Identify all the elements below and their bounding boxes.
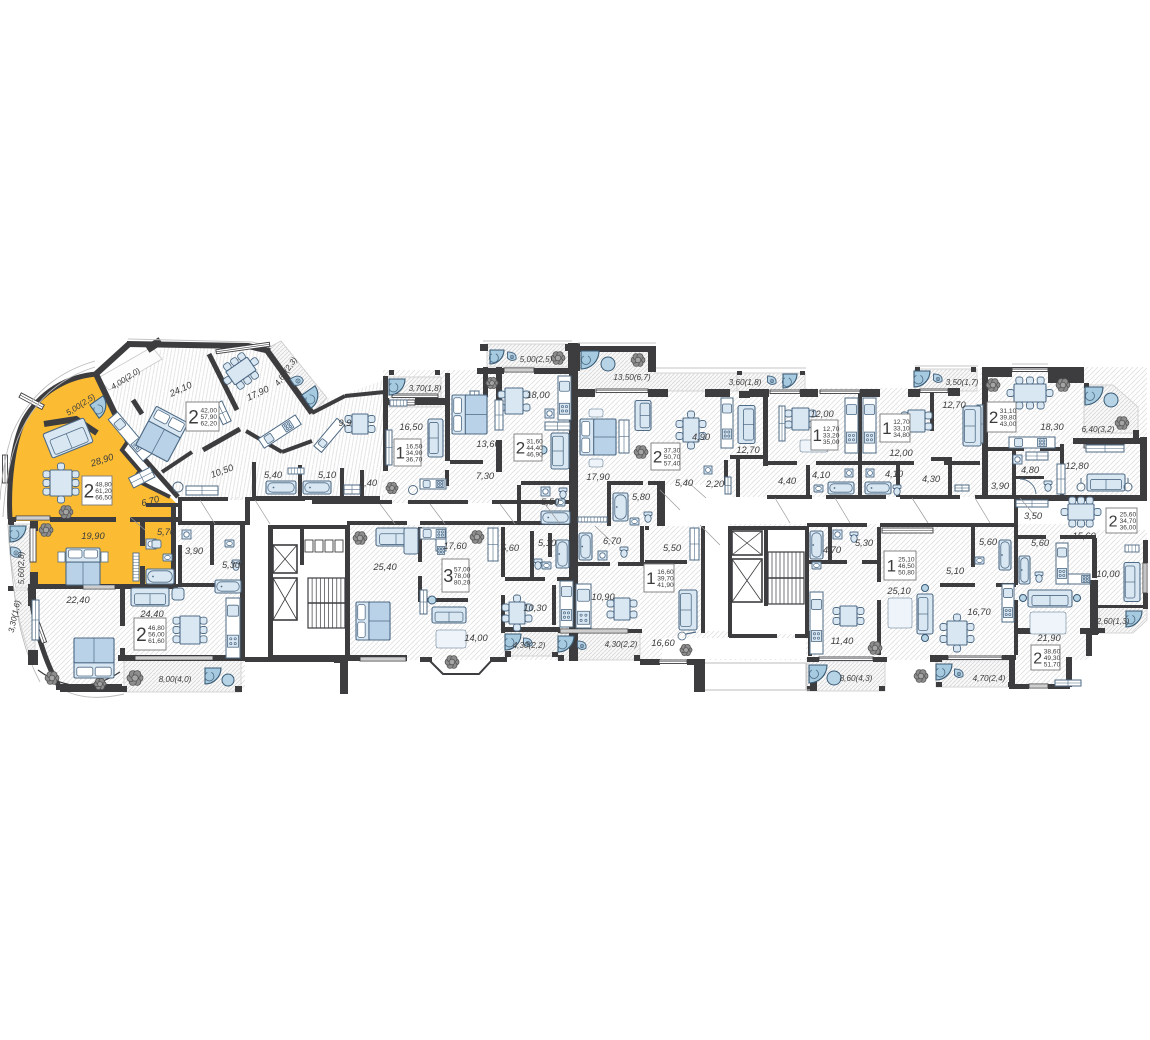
svg-text:3,50(1,7): 3,50(1,7) bbox=[946, 378, 979, 387]
svg-text:4,80: 4,80 bbox=[1021, 465, 1040, 475]
svg-text:19,90: 19,90 bbox=[81, 531, 105, 541]
svg-text:16,70: 16,70 bbox=[967, 607, 991, 617]
svg-text:14,00: 14,00 bbox=[464, 633, 488, 643]
svg-text:51,70: 51,70 bbox=[1044, 662, 1061, 669]
svg-text:2,20: 2,20 bbox=[705, 479, 725, 489]
svg-text:17,60: 17,60 bbox=[443, 541, 467, 551]
svg-text:50,80: 50,80 bbox=[898, 570, 915, 577]
svg-text:1: 1 bbox=[812, 426, 821, 445]
svg-text:16,50: 16,50 bbox=[399, 422, 423, 432]
svg-text:11,40: 11,40 bbox=[831, 636, 854, 646]
svg-text:22,40: 22,40 bbox=[65, 595, 90, 605]
svg-text:61,60: 61,60 bbox=[148, 638, 165, 645]
svg-text:62,20: 62,20 bbox=[201, 421, 218, 428]
svg-text:2: 2 bbox=[989, 408, 998, 427]
svg-text:25,10: 25,10 bbox=[886, 586, 911, 596]
svg-text:2: 2 bbox=[84, 481, 95, 502]
svg-text:2,60(1,3): 2,60(1,3) bbox=[1096, 617, 1130, 626]
svg-text:5,60: 5,60 bbox=[501, 543, 520, 553]
svg-text:6,70: 6,70 bbox=[603, 536, 622, 546]
svg-text:4,10: 4,10 bbox=[885, 469, 904, 479]
svg-text:4,70: 4,70 bbox=[823, 545, 842, 555]
svg-text:B: B bbox=[511, 355, 514, 360]
svg-text:3,90: 3,90 bbox=[991, 481, 1010, 491]
svg-text:8,60(4,3): 8,60(4,3) bbox=[840, 674, 873, 683]
svg-text:1: 1 bbox=[395, 444, 404, 463]
svg-text:80,20: 80,20 bbox=[454, 580, 471, 587]
svg-text:5,10: 5,10 bbox=[538, 538, 557, 548]
svg-text:4,30(2,2): 4,30(2,2) bbox=[605, 640, 638, 649]
svg-text:4,30(2,2): 4,30(2,2) bbox=[513, 641, 546, 650]
svg-text:5,60: 5,60 bbox=[979, 537, 998, 547]
svg-text:24,40: 24,40 bbox=[139, 609, 164, 619]
svg-text:3,60(1,8): 3,60(1,8) bbox=[729, 378, 762, 387]
svg-text:2: 2 bbox=[188, 407, 199, 428]
svg-text:13,50(6,7): 13,50(6,7) bbox=[613, 373, 651, 382]
svg-text:35,00: 35,00 bbox=[823, 439, 840, 446]
svg-text:1: 1 bbox=[646, 569, 655, 588]
svg-text:25,40: 25,40 bbox=[372, 562, 397, 572]
svg-text:12,70: 12,70 bbox=[942, 400, 966, 410]
svg-text:12,00: 12,00 bbox=[889, 448, 913, 458]
svg-text:41,90: 41,90 bbox=[657, 582, 674, 589]
svg-text:2: 2 bbox=[653, 448, 662, 467]
svg-text:B: B bbox=[937, 377, 940, 382]
svg-text:2: 2 bbox=[516, 439, 525, 458]
svg-text:8,00(4,0): 8,00(4,0) bbox=[159, 675, 192, 684]
svg-text:43,00: 43,00 bbox=[1000, 421, 1017, 428]
svg-text:5,70: 5,70 bbox=[157, 527, 176, 537]
svg-text:10,00: 10,00 bbox=[1096, 569, 1120, 579]
svg-text:18,00: 18,00 bbox=[526, 390, 550, 400]
svg-text:4,70(2,4): 4,70(2,4) bbox=[973, 674, 1006, 683]
svg-text:3,40: 3,40 bbox=[359, 478, 378, 488]
svg-text:15,60: 15,60 bbox=[1072, 531, 1096, 541]
svg-text:B: B bbox=[958, 672, 961, 677]
svg-text:3,70(1,8): 3,70(1,8) bbox=[409, 384, 442, 393]
svg-text:57,40: 57,40 bbox=[664, 461, 681, 468]
svg-text:5,60: 5,60 bbox=[1031, 538, 1050, 548]
svg-text:9,9: 9,9 bbox=[339, 418, 352, 428]
svg-text:7,30: 7,30 bbox=[476, 471, 495, 481]
svg-text:5,30: 5,30 bbox=[855, 538, 874, 548]
svg-text:34,80: 34,80 bbox=[893, 432, 910, 439]
svg-text:2: 2 bbox=[1033, 650, 1042, 667]
svg-text:36,00: 36,00 bbox=[1120, 525, 1137, 532]
svg-text:1: 1 bbox=[882, 419, 891, 438]
svg-text:46,90: 46,90 bbox=[526, 452, 543, 459]
svg-text:36,70: 36,70 bbox=[406, 457, 423, 464]
svg-text:2: 2 bbox=[136, 625, 147, 646]
svg-text:16,60: 16,60 bbox=[651, 638, 675, 648]
svg-text:4,10: 4,10 bbox=[812, 470, 831, 480]
svg-text:5,40: 5,40 bbox=[675, 478, 694, 488]
svg-text:2: 2 bbox=[1109, 513, 1118, 530]
svg-text:17,90: 17,90 bbox=[586, 472, 610, 482]
svg-text:66,50: 66,50 bbox=[95, 495, 112, 502]
svg-text:10,30: 10,30 bbox=[523, 603, 547, 613]
svg-text:21,90: 21,90 bbox=[1036, 633, 1061, 643]
svg-text:5,80: 5,80 bbox=[632, 492, 651, 502]
svg-text:5,40: 5,40 bbox=[264, 470, 283, 480]
svg-text:B: B bbox=[581, 644, 584, 649]
svg-text:4,30: 4,30 bbox=[922, 474, 941, 484]
svg-text:3,50: 3,50 bbox=[1024, 511, 1043, 521]
svg-text:4,40: 4,40 bbox=[778, 476, 797, 486]
svg-text:3,90: 3,90 bbox=[185, 546, 204, 556]
svg-text:4,90: 4,90 bbox=[692, 432, 711, 442]
svg-text:6,40(3,2): 6,40(3,2) bbox=[1082, 425, 1115, 434]
svg-text:12,00: 12,00 bbox=[810, 409, 834, 419]
svg-text:13,60: 13,60 bbox=[476, 439, 500, 449]
svg-text:12,80: 12,80 bbox=[1065, 461, 1089, 471]
svg-text:5,50: 5,50 bbox=[541, 497, 560, 507]
svg-text:5,50: 5,50 bbox=[663, 543, 682, 553]
svg-text:5,30: 5,30 bbox=[222, 560, 241, 570]
svg-text:5,60(2,8): 5,60(2,8) bbox=[17, 551, 26, 584]
svg-text:18,30: 18,30 bbox=[1040, 422, 1064, 432]
svg-text:B: B bbox=[771, 379, 774, 384]
svg-text:10,90: 10,90 bbox=[591, 592, 615, 602]
svg-text:5,10: 5,10 bbox=[946, 566, 965, 576]
svg-text:12,70: 12,70 bbox=[736, 445, 760, 455]
svg-text:5,10: 5,10 bbox=[318, 470, 337, 480]
svg-text:3: 3 bbox=[443, 566, 453, 586]
svg-text:5,00(2,5): 5,00(2,5) bbox=[520, 355, 553, 364]
svg-text:1: 1 bbox=[887, 557, 896, 576]
